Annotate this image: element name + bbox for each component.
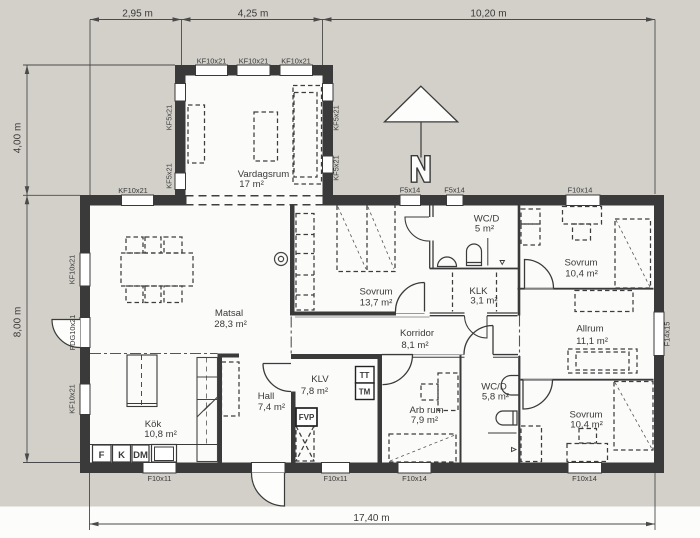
svg-text:17,40 m: 17,40 m	[353, 513, 389, 524]
svg-text:17 m²: 17 m²	[239, 179, 264, 190]
svg-text:KF10x21: KF10x21	[68, 384, 77, 414]
svg-text:KF10x21: KF10x21	[68, 255, 77, 285]
svg-text:KF5x21: KF5x21	[165, 105, 174, 130]
svg-text:10,20 m: 10,20 m	[470, 9, 506, 20]
svg-text:Allrum: Allrum	[576, 324, 603, 335]
svg-text:Hall: Hall	[258, 391, 275, 402]
svg-text:2,95 m: 2,95 m	[122, 9, 153, 20]
svg-text:4,00 m: 4,00 m	[13, 123, 24, 154]
svg-text:KF10x21: KF10x21	[197, 57, 227, 66]
svg-text:F: F	[99, 450, 105, 461]
svg-text:F5x14: F5x14	[444, 186, 465, 195]
svg-text:8,00 m: 8,00 m	[13, 307, 24, 338]
svg-text:FVP: FVP	[299, 413, 315, 422]
svg-text:KF5x21: KF5x21	[332, 105, 341, 130]
svg-text:TT: TT	[360, 371, 370, 380]
svg-text:28,3 m²: 28,3 m²	[214, 319, 247, 330]
svg-text:8,1 m²: 8,1 m²	[401, 340, 429, 351]
svg-text:4,25 m: 4,25 m	[238, 9, 269, 20]
svg-text:Korridor: Korridor	[400, 328, 435, 339]
svg-text:KF5x21: KF5x21	[165, 163, 174, 188]
svg-text:5 m²: 5 m²	[475, 224, 495, 235]
svg-text:TM: TM	[359, 388, 371, 397]
svg-text:Sovrum: Sovrum	[359, 287, 392, 298]
svg-text:F10x14: F10x14	[572, 474, 597, 483]
svg-text:7,8 m²: 7,8 m²	[301, 386, 329, 397]
svg-text:10,4 m²: 10,4 m²	[565, 269, 598, 280]
svg-text:DM: DM	[133, 450, 148, 461]
svg-text:FDG10x21: FDG10x21	[68, 315, 77, 351]
svg-text:K: K	[118, 450, 125, 461]
svg-text:3,1 m²: 3,1 m²	[470, 296, 498, 307]
svg-text:F10x11: F10x11	[147, 474, 171, 483]
svg-text:7,4 m²: 7,4 m²	[258, 402, 286, 413]
svg-text:KLV: KLV	[311, 374, 329, 385]
svg-text:F10x14: F10x14	[568, 186, 593, 195]
svg-text:KF10x21: KF10x21	[118, 186, 148, 195]
svg-text:F10x11: F10x11	[323, 474, 347, 483]
svg-text:Sovrum: Sovrum	[564, 258, 597, 269]
svg-text:Matsal: Matsal	[215, 308, 243, 319]
svg-text:10,4 m²: 10,4 m²	[570, 420, 603, 431]
svg-text:F10x14: F10x14	[402, 474, 427, 483]
svg-text:13,7 m²: 13,7 m²	[360, 298, 393, 309]
svg-text:10,8 m²: 10,8 m²	[144, 429, 177, 440]
svg-text:7,9 m²: 7,9 m²	[411, 415, 439, 426]
svg-text:F5x14: F5x14	[400, 186, 421, 195]
svg-text:F14x15: F14x15	[663, 322, 672, 347]
svg-text:KF10x21: KF10x21	[281, 57, 311, 66]
svg-text:5,8 m²: 5,8 m²	[482, 392, 510, 403]
svg-text:KF5x21: KF5x21	[332, 155, 341, 180]
svg-text:11,1 m²: 11,1 m²	[576, 336, 609, 347]
svg-text:KF10x21: KF10x21	[239, 57, 269, 66]
